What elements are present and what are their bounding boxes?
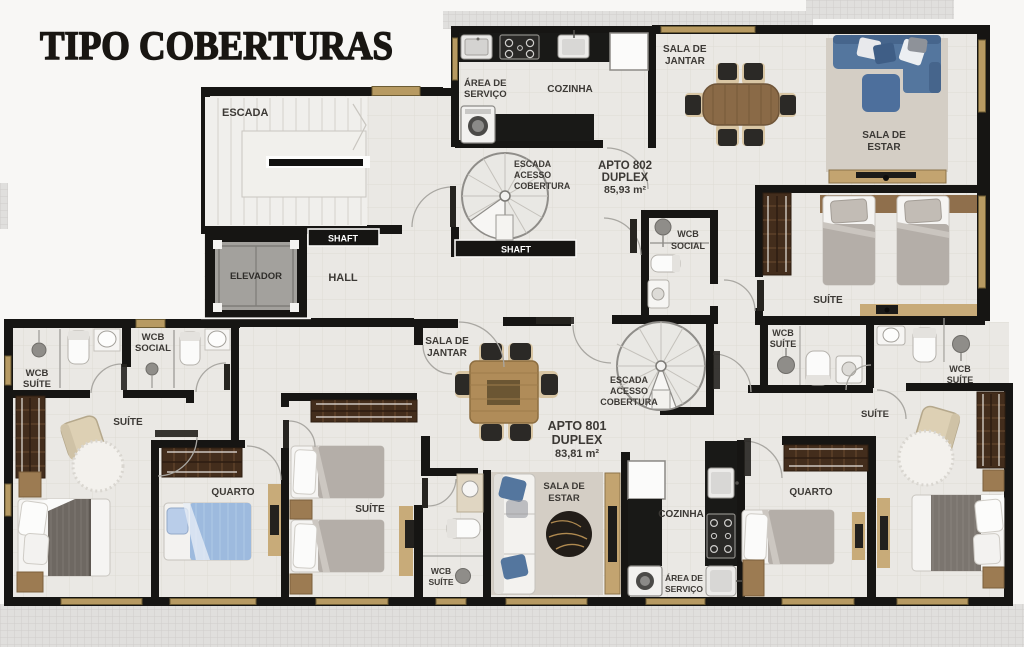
svg-text:ACESSO: ACESSO [514, 170, 551, 180]
svg-text:SOCIAL: SOCIAL [135, 343, 171, 354]
svg-text:WCB: WCB [26, 368, 49, 379]
svg-text:HALL: HALL [328, 272, 358, 284]
svg-text:COBERTURA: COBERTURA [514, 181, 571, 191]
svg-text:ESCADA: ESCADA [222, 107, 269, 119]
svg-text:SUÍTE: SUÍTE [23, 379, 51, 390]
svg-text:ÁREA DE: ÁREA DE [464, 78, 506, 89]
svg-text:WCB: WCB [949, 364, 971, 374]
svg-text:QUARTO: QUARTO [789, 487, 832, 498]
svg-text:SHAFT: SHAFT [501, 245, 531, 255]
svg-text:SUÍTE: SUÍTE [113, 415, 143, 428]
svg-text:SHAFT: SHAFT [328, 234, 358, 244]
svg-text:SUÍTE: SUÍTE [428, 577, 453, 587]
svg-text:WCB: WCB [431, 566, 451, 576]
svg-text:WCB: WCB [142, 332, 165, 343]
svg-text:SUÍTE: SUÍTE [861, 409, 889, 420]
svg-text:APTO 802: APTO 802 [598, 160, 652, 172]
svg-text:SALA DE: SALA DE [862, 130, 906, 141]
svg-text:QUARTO: QUARTO [211, 487, 254, 498]
svg-text:DUPLEX: DUPLEX [552, 433, 603, 447]
svg-text:ACESSO: ACESSO [610, 386, 648, 396]
svg-text:COBERTURA: COBERTURA [600, 397, 658, 407]
svg-text:SALA DE: SALA DE [543, 481, 584, 492]
svg-text:ÁREA DE: ÁREA DE [665, 573, 703, 583]
svg-text:ESTAR: ESTAR [548, 493, 580, 504]
svg-text:SALA DE: SALA DE [425, 336, 469, 347]
svg-text:ELEVADOR: ELEVADOR [230, 271, 282, 282]
svg-text:SUÍTE: SUÍTE [355, 502, 385, 515]
svg-text:TIPO COBERTURAS: TIPO COBERTURAS [40, 23, 393, 68]
svg-text:SUÍTE: SUÍTE [813, 293, 843, 306]
svg-text:SERVIÇO: SERVIÇO [665, 584, 703, 594]
svg-text:SOCIAL: SOCIAL [671, 241, 706, 251]
svg-text:WCB: WCB [772, 328, 794, 338]
svg-text:ESTAR: ESTAR [867, 142, 901, 153]
svg-text:SUÍTE: SUÍTE [770, 339, 797, 349]
svg-text:SERVIÇO: SERVIÇO [464, 89, 507, 100]
svg-text:COZINHA: COZINHA [658, 509, 704, 520]
svg-text:DUPLEX: DUPLEX [602, 172, 649, 184]
svg-text:COZINHA: COZINHA [547, 84, 593, 95]
svg-text:JANTAR: JANTAR [665, 56, 706, 67]
svg-text:APTO 801: APTO 801 [548, 419, 607, 433]
svg-text:ESCADA: ESCADA [610, 375, 649, 385]
svg-text:WCB: WCB [677, 229, 699, 239]
svg-text:83,81 m²: 83,81 m² [555, 448, 599, 460]
svg-text:JANTAR: JANTAR [427, 348, 468, 359]
svg-text:SALA DE: SALA DE [663, 44, 707, 55]
svg-text:85,93 m²: 85,93 m² [604, 184, 647, 196]
svg-text:SUÍTE: SUÍTE [947, 375, 974, 385]
svg-text:ESCADA: ESCADA [514, 159, 552, 169]
